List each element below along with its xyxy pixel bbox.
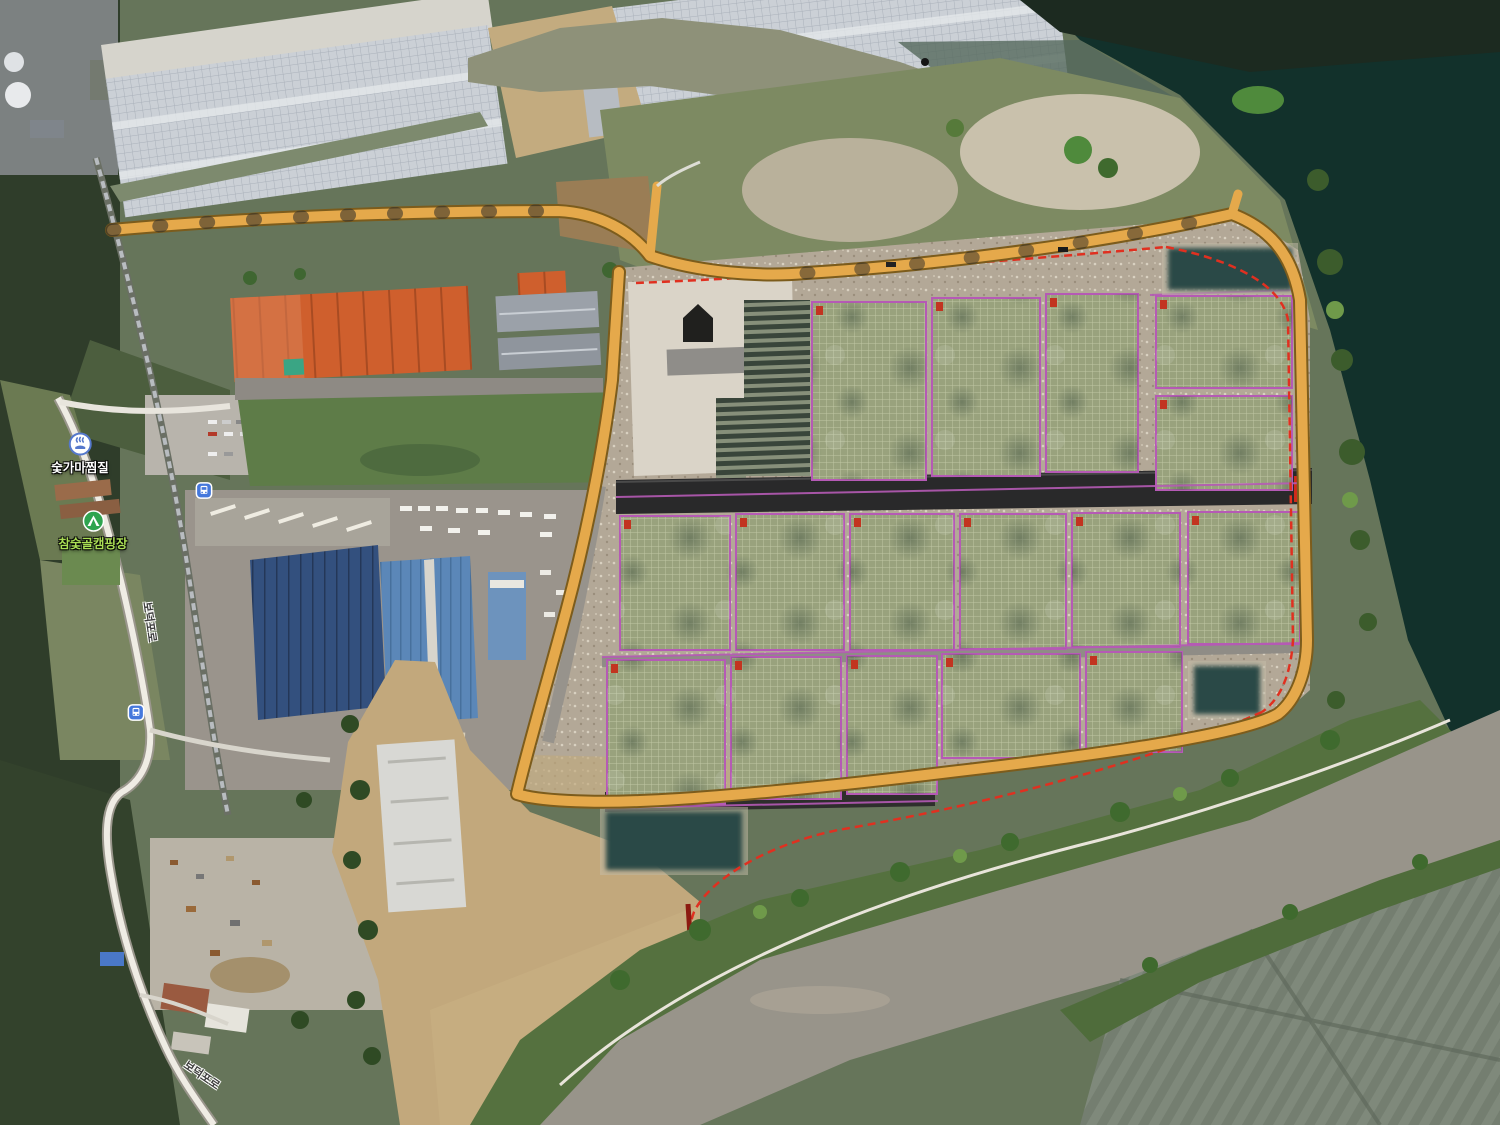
greenhouse-block-shading xyxy=(1156,396,1292,490)
sauna-icon xyxy=(68,432,92,456)
bus-stop-icon[interactable] xyxy=(196,482,213,504)
map-canvas xyxy=(0,0,1500,1125)
camping-icon xyxy=(82,510,104,532)
greenhouse-block-shading xyxy=(960,514,1066,649)
block-corner-marker xyxy=(854,518,861,527)
greenhouse-block-shading xyxy=(607,660,725,804)
greenhouse-block-shading xyxy=(812,302,926,480)
poi-sauna-label[interactable]: 숯가마찜질 xyxy=(51,457,109,476)
block-corner-marker xyxy=(936,302,943,311)
greenhouse-block-shading xyxy=(850,514,954,650)
block-corner-marker xyxy=(1192,516,1199,525)
poi-sauna[interactable]: 숯가마찜질 xyxy=(51,432,109,476)
block-corner-marker xyxy=(1160,300,1167,309)
block-corner-marker xyxy=(1076,517,1083,526)
redacted-area-R1 xyxy=(1168,248,1292,290)
white-long-building xyxy=(377,739,467,912)
lumber-yard xyxy=(195,498,390,546)
greenhouse-block-shading xyxy=(942,654,1080,758)
block-corner-marker xyxy=(816,306,823,315)
block-corner-marker xyxy=(1090,656,1097,665)
panel-rows xyxy=(744,300,810,476)
greenhouse-block-shading xyxy=(1072,513,1180,647)
block-corner-marker xyxy=(1160,400,1167,409)
greenhouse-block-shading xyxy=(1156,296,1292,388)
poi-campground[interactable]: 참숯골캠핑장 xyxy=(58,510,127,552)
block-corner-marker xyxy=(851,660,858,669)
poi-campground-label[interactable]: 참숯골캠핑장 xyxy=(58,533,127,552)
greenhouse-block-shading xyxy=(1188,512,1300,644)
satellite-map-view[interactable]: 숯가마찜질 참숯골캠핑장 보덕포로 보덕포로 xyxy=(0,0,1500,1125)
industrial-corner xyxy=(0,0,118,175)
greenhouse-block-shading xyxy=(736,514,844,650)
greenhouse-block-shading xyxy=(731,657,841,799)
block-corner-marker xyxy=(611,664,618,673)
bus-stop-icon[interactable] xyxy=(128,704,145,726)
block-corner-marker xyxy=(1050,298,1057,307)
navy-warehouse-roof xyxy=(250,545,386,720)
redacted-area-R3 xyxy=(1194,666,1260,714)
greenhouse-block-shading xyxy=(932,298,1040,476)
greenhouse-block-shading xyxy=(1046,294,1138,472)
block-corner-marker xyxy=(964,518,971,527)
block-corner-marker xyxy=(735,661,742,670)
block-corner-marker xyxy=(740,518,747,527)
block-corner-marker xyxy=(624,520,631,529)
block-corner-marker xyxy=(946,658,953,667)
redacted-area-R2 xyxy=(606,812,742,870)
greenhouse-block-shading xyxy=(620,516,730,650)
